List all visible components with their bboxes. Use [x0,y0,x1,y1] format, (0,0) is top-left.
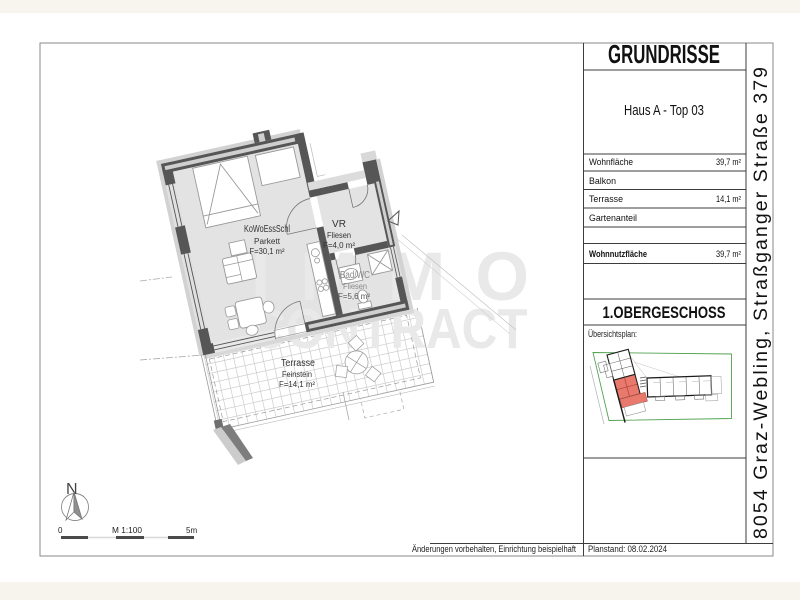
svg-text:GRUNDRISSE: GRUNDRISSE [608,39,720,69]
svg-text:F=4,0 m²: F=4,0 m² [323,241,355,250]
svg-text:Planstand: 08.02.2024: Planstand: 08.02.2024 [588,544,667,554]
svg-text:Übersichtsplan:: Übersichtsplan: [588,329,637,339]
svg-text:Haus A - Top 03: Haus A - Top 03 [624,102,704,119]
svg-text:Balkon: Balkon [589,176,616,186]
svg-text:Wohnfläche: Wohnfläche [589,157,633,167]
svg-text:39,7 m²: 39,7 m² [716,157,741,167]
svg-text:39,7 m²: 39,7 m² [716,249,741,259]
svg-text:Gartenanteil: Gartenanteil [589,213,637,223]
svg-text:8054 Graz-Webling, Straßganger: 8054 Graz-Webling, Straßganger Straße 37… [750,67,772,539]
svg-text:Fliesen: Fliesen [327,231,351,240]
svg-text:5m: 5m [186,526,197,535]
svg-text:0: 0 [58,526,63,535]
svg-text:F=5,6 m²: F=5,6 m² [338,292,370,301]
svg-text:N: N [66,481,78,498]
svg-text:Wohnnutzfläche: Wohnnutzfläche [589,249,647,259]
svg-text:VR: VR [332,219,346,230]
svg-text:Feinstein: Feinstein [282,370,312,379]
svg-text:14,1 m²: 14,1 m² [716,194,741,204]
svg-text:KoWoEssSchl: KoWoEssSchl [244,224,290,235]
svg-text:Parkett: Parkett [254,237,281,246]
svg-text:M 1:100: M 1:100 [112,526,143,535]
svg-text:Terrasse: Terrasse [589,194,623,204]
svg-text:Terrasse: Terrasse [281,358,315,369]
svg-text:F=30,1 m²: F=30,1 m² [250,247,285,256]
svg-text:Bad/WC: Bad/WC [340,270,370,281]
svg-text:Änderungen vorbehalten, Einric: Änderungen vorbehalten, Einrichtung beis… [412,544,576,554]
svg-text:Fliesen: Fliesen [343,282,367,291]
svg-text:1.OBERGESCHOSS: 1.OBERGESCHOSS [603,303,726,322]
svg-text:F=14,1 m²: F=14,1 m² [279,380,315,389]
